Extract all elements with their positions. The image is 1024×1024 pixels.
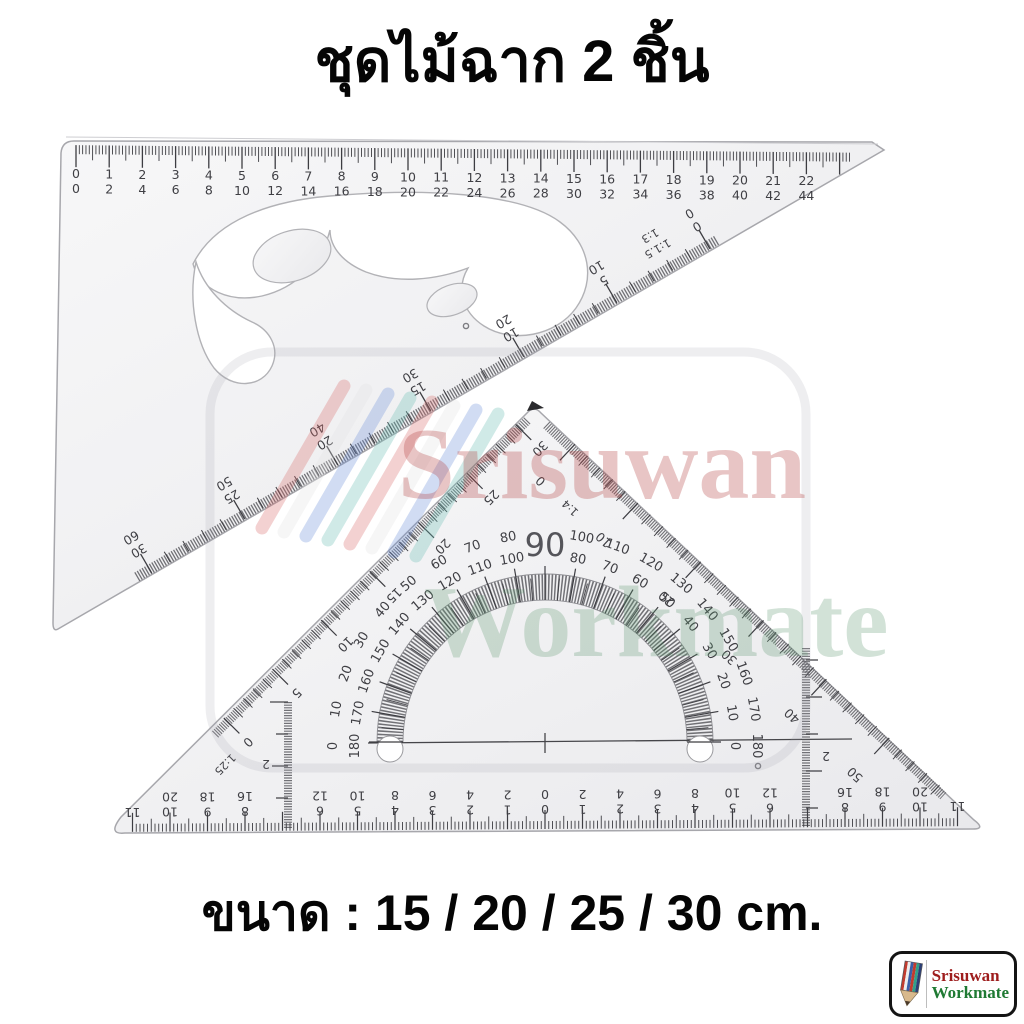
scale-number: 14 <box>533 171 549 186</box>
scale-number: 8 <box>691 786 699 801</box>
scale-number: 2 <box>616 802 624 817</box>
scale-number: 3 <box>654 801 662 816</box>
protractor-notch-left <box>377 736 403 762</box>
scale-number: 180 <box>348 734 363 759</box>
scale-number: 7 <box>304 168 312 183</box>
brand-name-line1: Srisuwan <box>932 967 1009 985</box>
scale-number: 4 <box>138 182 146 197</box>
scale-number: 12 <box>466 170 482 185</box>
scale-number: 16 <box>599 171 615 186</box>
size-text: ขนาด : 15 / 20 / 25 / 30 cm. <box>0 874 1024 953</box>
scale-number: 5 <box>729 801 737 816</box>
scale-number: 22 <box>798 173 814 188</box>
scale-number: 0 <box>72 166 80 181</box>
product-photo: ชุดไม้ฉาก 2 ชิ้น 00122436485106127148169… <box>0 0 1024 1024</box>
scale-number: 2 <box>822 749 830 764</box>
protractor-notch-right <box>687 736 713 762</box>
scale-number: 12 <box>312 789 328 804</box>
scale-number: 4 <box>391 803 399 818</box>
scale-number: 4 <box>205 167 213 182</box>
scale-number: 10 <box>723 704 741 723</box>
watermark-line2: Workmate <box>424 566 889 679</box>
scale-number: 12 <box>267 183 283 198</box>
scale-number: 24 <box>466 185 482 200</box>
scale-number: 12 <box>762 785 778 800</box>
scale-number: 19 <box>699 172 715 187</box>
scale-number: 10 <box>162 805 178 820</box>
scale-number: 5 <box>354 803 362 818</box>
scale-number: 18 <box>367 184 383 199</box>
scale-number: 38 <box>699 187 715 202</box>
scale-number: 26 <box>500 185 516 200</box>
scale-number: 10 <box>350 788 366 803</box>
logo-divider <box>926 960 927 1008</box>
scale-number: 0 <box>541 787 549 802</box>
brand-text: Srisuwan Workmate <box>932 967 1009 1002</box>
scale-number: 6 <box>271 168 279 183</box>
scale-number: 28 <box>533 186 549 201</box>
scale-number: 4 <box>691 801 699 816</box>
brand-logo: Srisuwan Workmate <box>889 951 1017 1017</box>
scale-number: 2 <box>138 167 146 182</box>
scale-number: 10 <box>912 799 928 814</box>
scale-number: 20 <box>400 184 416 199</box>
ruler-illustration: 0012243648510612714816918102011221224132… <box>0 0 1024 1024</box>
scale-number: 2 <box>579 787 587 802</box>
scale-number: 3 <box>429 803 437 818</box>
watermark-line1: Srisuwan <box>398 408 806 521</box>
scale-number: 22 <box>433 185 449 200</box>
scale-number: 2 <box>466 803 474 818</box>
scale-number: 13 <box>500 170 516 185</box>
scale-number: 18 <box>666 172 682 187</box>
scale-number: 18 <box>875 785 891 800</box>
scale-number: 2 <box>105 181 113 196</box>
scale-number: 16 <box>837 785 853 800</box>
scale-number: 80 <box>499 529 518 547</box>
scale-number: 4 <box>466 788 474 803</box>
scale-number: 9 <box>371 169 379 184</box>
scale-number: 180 <box>749 734 764 759</box>
scale-number: 11 <box>950 799 966 814</box>
scale-number: 10 <box>328 700 346 719</box>
scale-number: 0 <box>326 742 341 750</box>
scale-number: 6 <box>428 788 436 803</box>
scale-number: 8 <box>205 182 213 197</box>
scale-number: 34 <box>632 187 648 202</box>
scale-number: 20 <box>162 790 178 805</box>
scale-number: 1 <box>504 802 512 817</box>
scale-number: 21 <box>765 173 781 188</box>
brand-name-line2: Workmate <box>932 984 1009 1002</box>
scale-number: 9 <box>878 800 886 815</box>
scale-number: 8 <box>241 804 249 819</box>
scale-number: 6 <box>172 182 180 197</box>
scale-number: 40 <box>732 188 748 203</box>
scale-number: 1 <box>105 166 113 181</box>
scale-number: 11 <box>125 805 141 820</box>
scale-number: 20 <box>912 784 928 799</box>
scale-number: 6 <box>653 786 661 801</box>
scale-number: 9 <box>203 804 211 819</box>
scale-number: 42 <box>765 188 781 203</box>
scale-number: 5 <box>238 168 246 183</box>
scale-number: 0 <box>727 742 742 750</box>
scale-number: 17 <box>632 172 648 187</box>
scale-number: 10 <box>725 786 741 801</box>
scale-number: 18 <box>200 789 216 804</box>
scale-number: 0 <box>72 181 80 196</box>
scale-number: 15 <box>566 171 582 186</box>
scale-number: 14 <box>300 183 316 198</box>
scale-number: 20 <box>732 173 748 188</box>
scale-number: 30 <box>566 186 582 201</box>
scale-number: 0 <box>541 802 549 817</box>
scale-number: 90 <box>525 526 566 564</box>
pencil-icon <box>897 958 923 1010</box>
scale-number: 11 <box>433 170 449 185</box>
scale-number: 8 <box>338 169 346 184</box>
scale-number: 10 <box>234 183 250 198</box>
scale-number: 6 <box>316 804 324 819</box>
scale-number: 2 <box>504 787 512 802</box>
scale-number: 4 <box>616 787 624 802</box>
scale-number: 44 <box>798 188 814 203</box>
scale-number: 6 <box>766 800 774 815</box>
scale-number: 36 <box>666 187 682 202</box>
scale-number: 8 <box>391 788 399 803</box>
scale-number: 3 <box>172 167 180 182</box>
scale-number: 1 <box>579 802 587 817</box>
scale-number: 8 <box>841 800 849 815</box>
scale-number: 16 <box>237 789 253 804</box>
scale-number: 32 <box>599 186 615 201</box>
scale-number: 10 <box>400 169 416 184</box>
scale-number: 16 <box>334 184 350 199</box>
